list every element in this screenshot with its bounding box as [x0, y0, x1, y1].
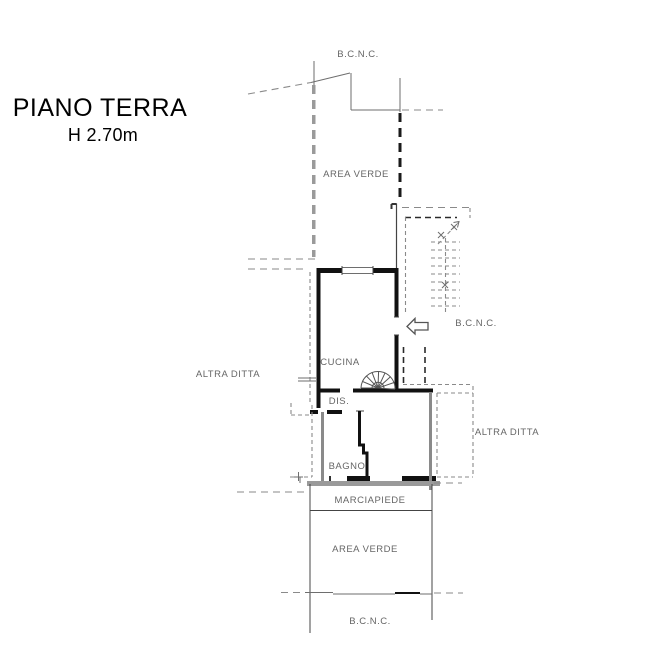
label-bagno: BAGNO [329, 461, 366, 472]
plan-labels: PIANO TERRA H 2.70m B.C.N.C. AREA VERDE … [13, 49, 540, 627]
label-bcnc-right: B.C.N.C. [455, 318, 496, 329]
floor-plan-drawing: PIANO TERRA H 2.70m B.C.N.C. AREA VERDE … [0, 0, 646, 651]
label-area-verde-top: AREA VERDE [323, 169, 389, 180]
label-marciapiede: MARCIAPIEDE [335, 495, 406, 506]
label-cucina: CUCINA [320, 357, 360, 368]
page-title: PIANO TERRA [13, 94, 188, 122]
label-altra-ditta-right: ALTRA DITTA [475, 427, 539, 438]
label-bcnc-top: B.C.N.C. [337, 49, 378, 60]
label-dis: DIS. [329, 396, 349, 407]
entrance-arrow-icon [407, 319, 428, 335]
gray-walls [307, 392, 440, 490]
staircase-dashed [392, 204, 471, 314]
floor-plan-page: PIANO TERRA H 2.70m B.C.N.C. AREA VERDE … [0, 0, 646, 651]
label-altra-ditta-left: ALTRA DITTA [196, 369, 260, 380]
dashed-lines-right [403, 347, 473, 483]
window-symbol [342, 266, 373, 275]
stair-direction-arrow-icon [438, 222, 459, 289]
height-label: H 2.70m [68, 125, 138, 145]
bottom-block [281, 484, 463, 633]
top-boundary-lines [248, 61, 443, 112]
spiral-stair-icon [361, 371, 395, 389]
label-area-verde-bottom: AREA VERDE [332, 544, 398, 555]
label-bcnc-bottom: B.C.N.C. [349, 616, 390, 627]
